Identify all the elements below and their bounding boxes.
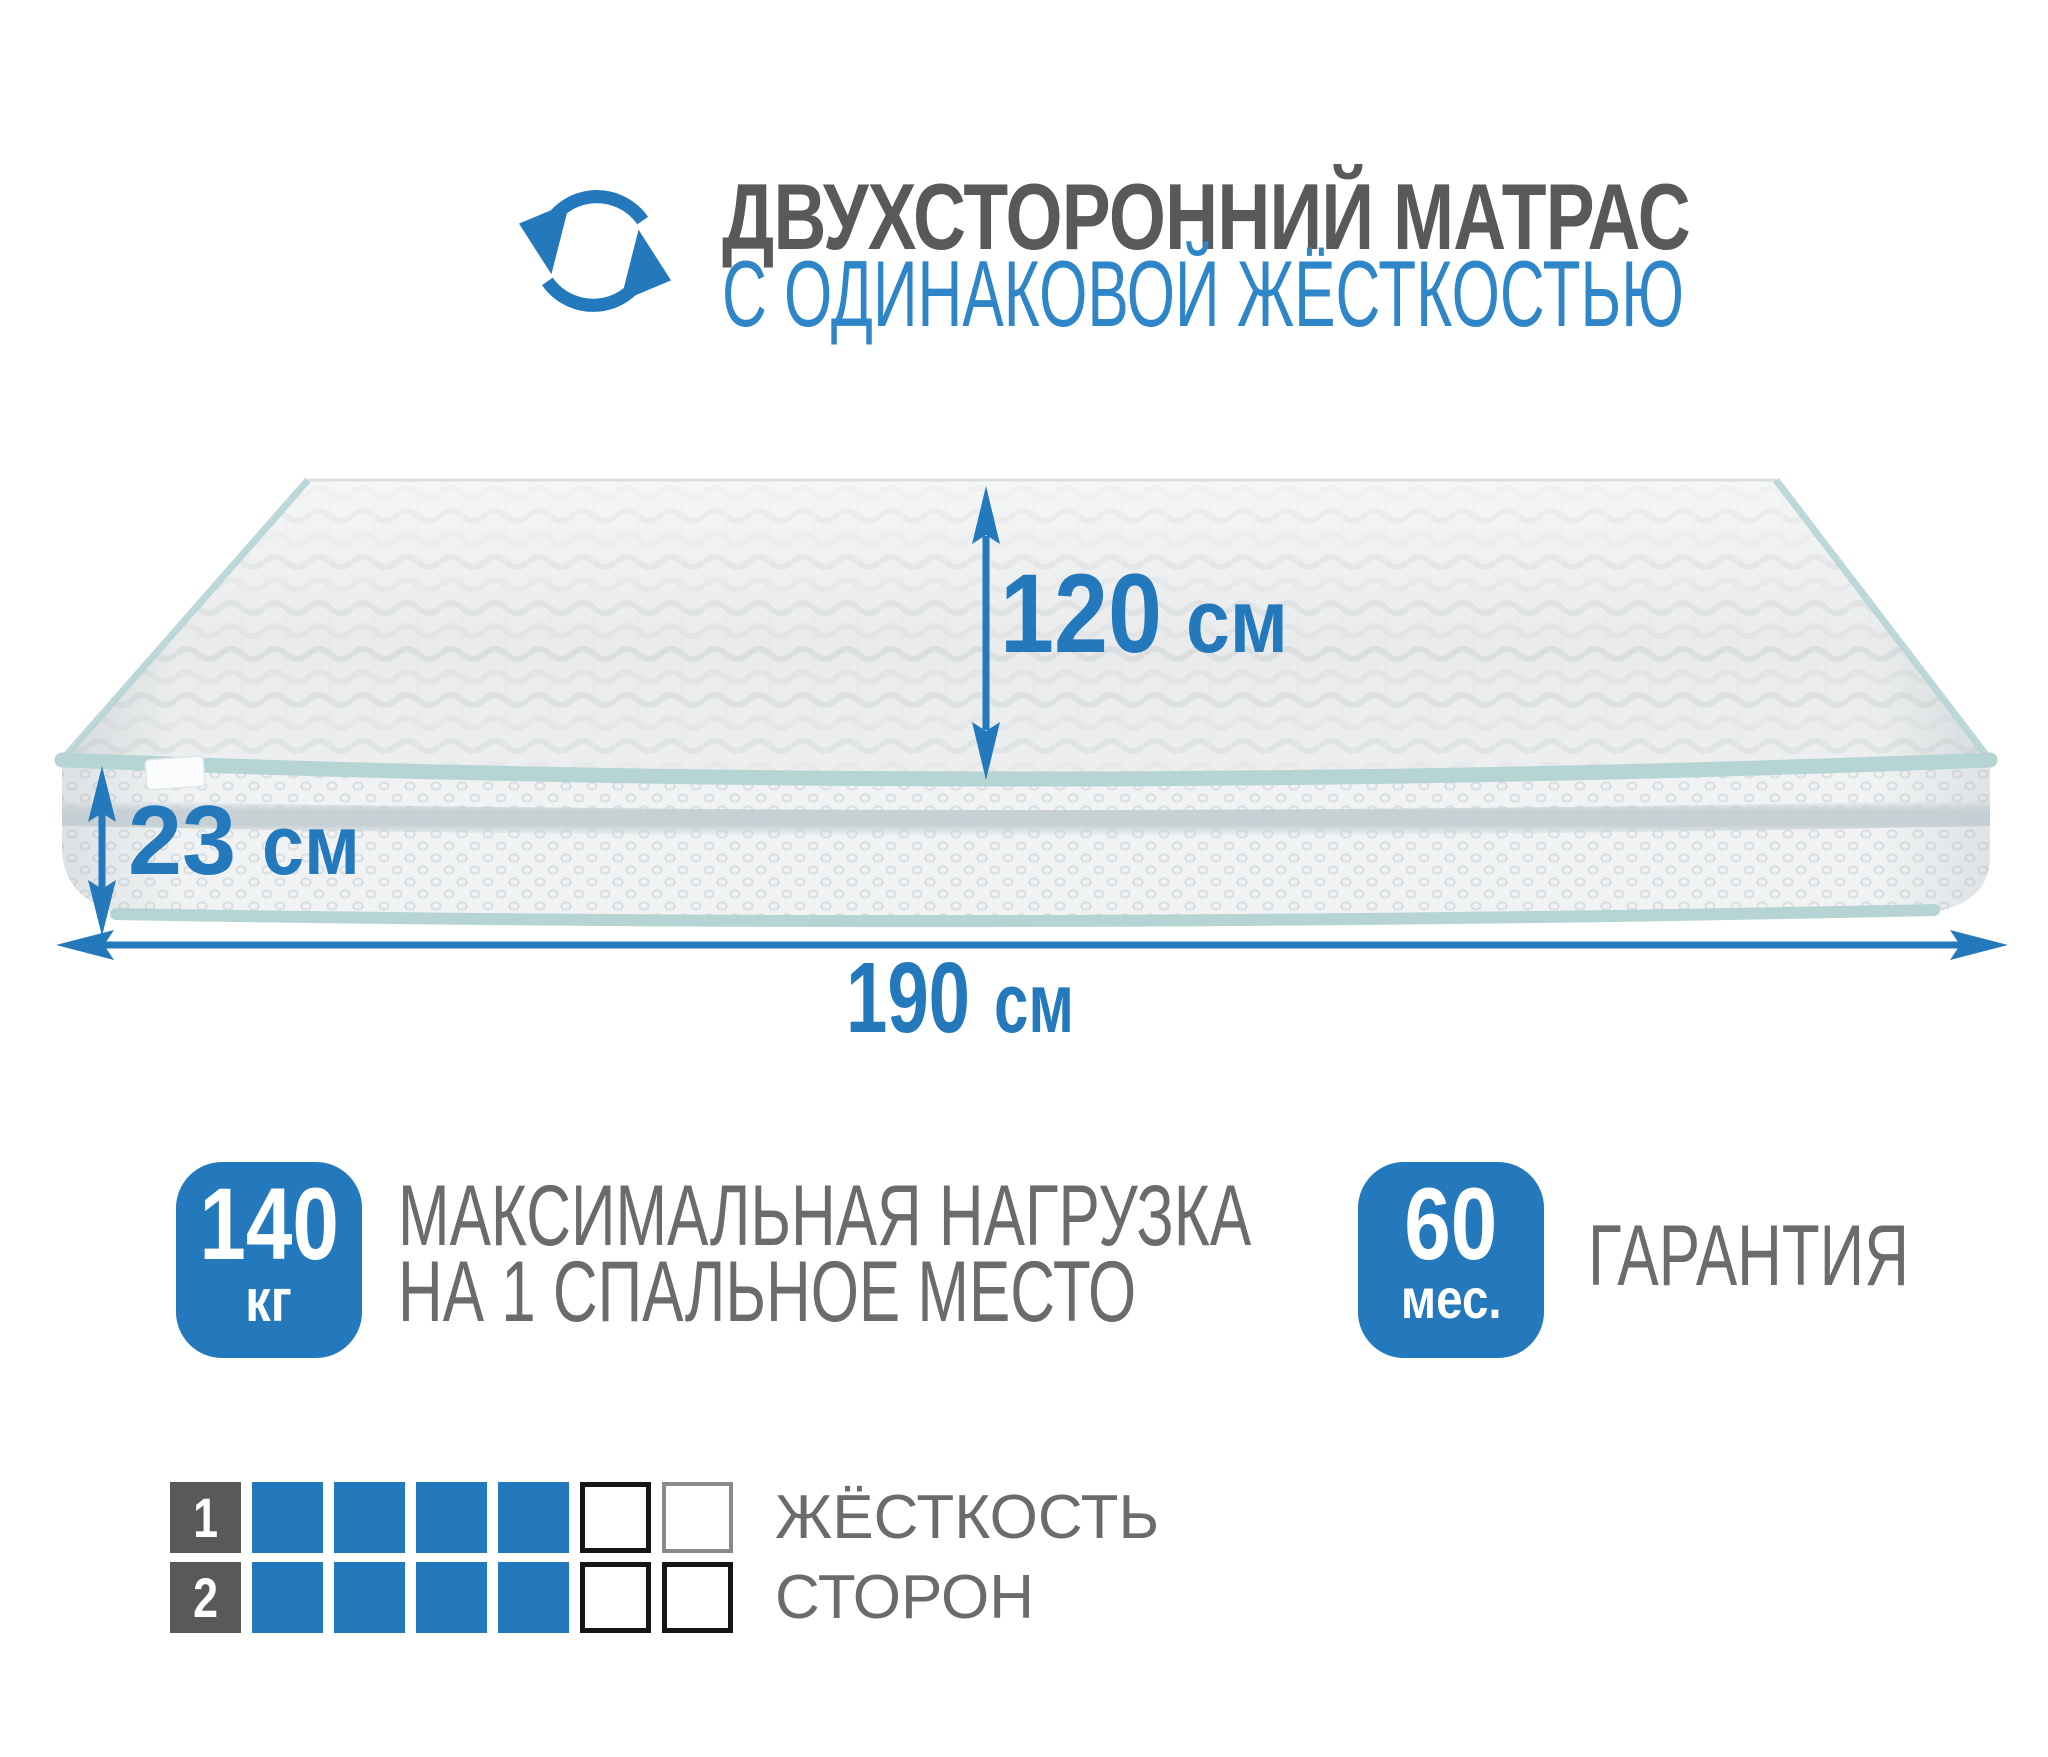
warranty-badge: 60 мес. <box>1358 1162 1544 1358</box>
warranty-label: ГАРАНТИЯ <box>1588 1218 1909 1294</box>
firmness-cell-filled <box>252 1562 323 1633</box>
max-load-badge: 140 кг <box>176 1162 362 1358</box>
max-load-value: 140 <box>199 1176 339 1273</box>
max-load-unit: кг <box>246 1271 293 1331</box>
firmness-cell-filled <box>416 1482 487 1553</box>
firmness-cell-empty <box>580 1482 651 1553</box>
side-number-badge: 2 <box>170 1562 241 1633</box>
side-number-badge: 1 <box>170 1482 241 1553</box>
firmness-cell-empty <box>662 1482 733 1553</box>
length-unit: см <box>994 956 1074 1050</box>
firmness-row-side2: 2 <box>170 1562 733 1633</box>
height-unit: см <box>262 798 360 892</box>
max-load-label-line1: МАКСИМАЛЬНАЯ НАГРУЗКА <box>398 1178 1251 1254</box>
firmness-cell-filled <box>334 1482 405 1553</box>
firmness-cell-filled <box>252 1482 323 1553</box>
infographic-canvas: ДВУХСТОРОННИЙ МАТРАС С ОДИНАКОВОЙ ЖЁСТКО… <box>0 0 2048 1757</box>
width-unit: см <box>1186 572 1288 672</box>
firmness-label-line1: ЖЁСТКОСТЬ <box>775 1482 1159 1553</box>
max-load-label-line2: НА 1 СПАЛЬНОЕ МЕСТО <box>398 1254 1251 1330</box>
length-value: 190 <box>846 942 970 1054</box>
firmness-cell-filled <box>498 1482 569 1553</box>
firmness-scale: 1 2 <box>170 1482 733 1642</box>
warranty-unit: мес. <box>1401 1271 1502 1327</box>
firmness-cell-empty <box>580 1562 651 1633</box>
firmness-cell-empty <box>662 1562 733 1633</box>
height-value: 23 <box>128 785 236 895</box>
firmness-cell-filled <box>416 1562 487 1633</box>
firmness-row-side1: 1 <box>170 1482 733 1553</box>
firmness-cell-filled <box>334 1562 405 1633</box>
width-value: 120 <box>1000 551 1162 676</box>
firmness-cell-filled <box>498 1562 569 1633</box>
warranty-value: 60 <box>1404 1176 1497 1273</box>
dimension-length: 190 см <box>56 930 2008 1054</box>
firmness-label-line2: СТОРОН <box>775 1562 1034 1633</box>
max-load-label: МАКСИМАЛЬНАЯ НАГРУЗКА НА 1 СПАЛЬНОЕ МЕСТ… <box>398 1178 1251 1330</box>
